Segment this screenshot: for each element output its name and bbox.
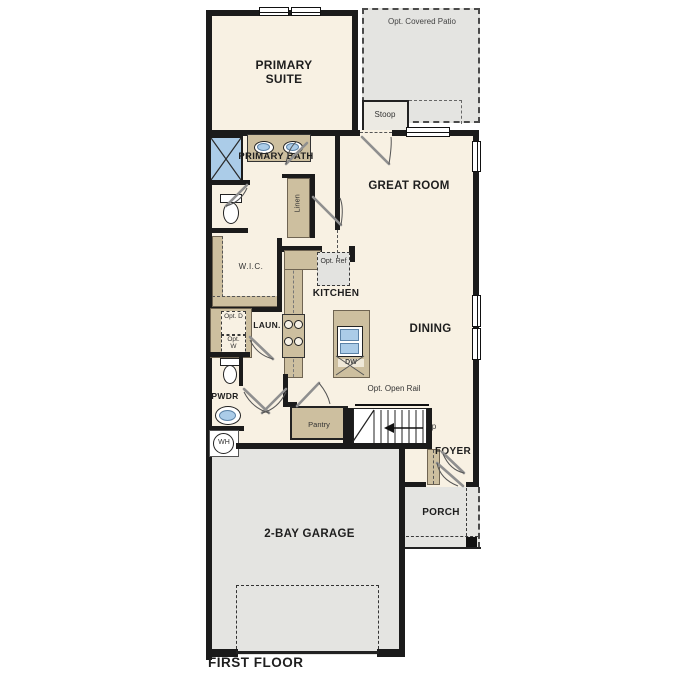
floorplan-canvas: Opt. Covered Patio Stoop PRIMARY BATH Li… [0, 0, 687, 687]
linework-overlay [0, 0, 687, 687]
